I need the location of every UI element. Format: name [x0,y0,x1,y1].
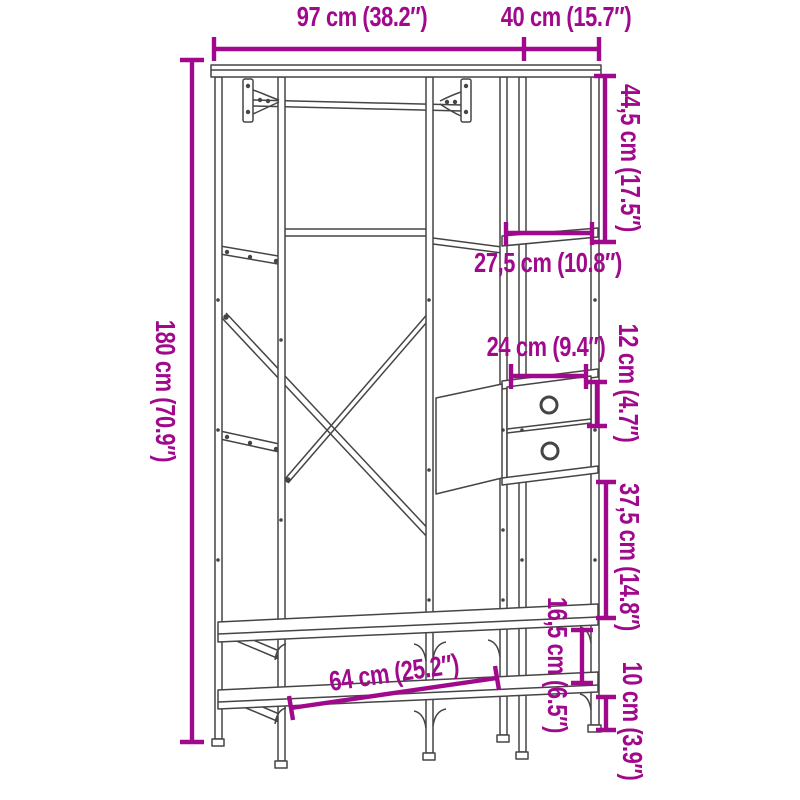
dim-label-drawer-height: 12 cm (4.7″) [612,324,644,443]
dim-label-top-depth: 40 cm (15.7″) [501,1,631,33]
upper-back-rail [284,229,502,253]
dim-label-top-width: 97 cm (38.2″) [297,1,427,33]
drawer-unit [436,369,598,494]
dim-label-total-height: 180 cm (70.9″) [149,320,181,462]
dim-label-bottom-clearance: 10 cm (3.9″) [616,662,648,781]
dim-line-total-height [180,60,204,742]
dim-label-upper-shelf-height: 44,5 cm (17.5″) [614,84,646,232]
dim-label-lower-gap-height: 16,5 cm (6.5″) [541,597,573,733]
dim-line-top-width [214,37,524,61]
dim-line-top-depth [524,37,599,61]
dim-label-drawer-width: 24 cm (9.4″) [487,331,606,363]
upper-shelf [502,228,598,246]
product-dimension-image: 97 cm (38.2″) 40 cm (15.7″) 180 cm (70.9… [0,0,800,800]
dim-label-shelf-depth: 27,5 cm (10.8″) [474,247,622,279]
cross-brace-x [222,311,433,539]
top-board [211,65,601,77]
dim-label-mid-gap-height: 37,5 cm (14.8″) [613,483,645,631]
